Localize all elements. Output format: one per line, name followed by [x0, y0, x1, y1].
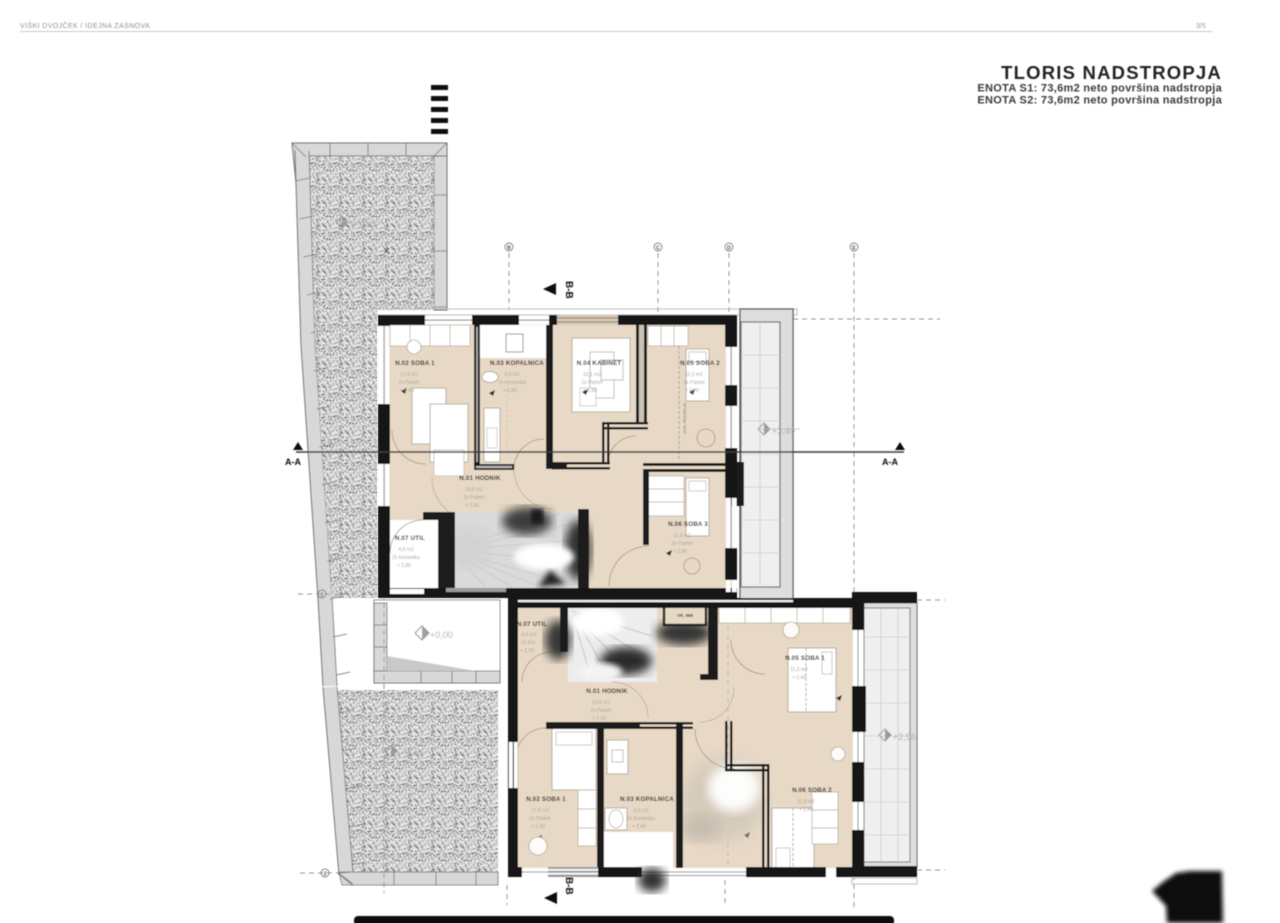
svg-text:+3,40: +3,40 — [400, 748, 423, 758]
svg-text:B: B — [507, 246, 511, 252]
svg-text:N.07 UTIL: N.07 UTIL — [395, 535, 425, 542]
svg-text:+3,40: +3,40 — [772, 426, 795, 436]
svg-text:+ 2,40: + 2,40 — [520, 648, 534, 654]
svg-text:ENOTA S2: 73,6m2 neto površin: ENOTA S2: 73,6m2 neto površina nadstropj… — [977, 95, 1222, 107]
svg-text:2x Parket: 2x Parket — [398, 380, 420, 386]
svg-text:N.05 SOBA 2: N.05 SOBA 2 — [680, 360, 720, 367]
svg-text:10,1 m2: 10,1 m2 — [583, 372, 601, 378]
svg-text:N.02 SOBA 1: N.02 SOBA 1 — [395, 360, 435, 367]
svg-text:TLORIS NADSTROPJA: TLORIS NADSTROPJA — [1001, 62, 1222, 83]
svg-text:6,0 m2: 6,0 m2 — [633, 808, 649, 814]
svg-text:6,0 m2: 6,0 m2 — [504, 372, 520, 378]
svg-text:N.03 KOPALNICA: N.03 KOPALNICA — [620, 796, 674, 803]
svg-text:2x Keramika: 2x Keramika — [498, 380, 526, 386]
svg-text:11,5 m2: 11,5 m2 — [790, 667, 808, 673]
svg-text:+ 2,40: + 2,40 — [632, 824, 646, 830]
svg-text:+ 2,80: + 2,80 — [465, 503, 479, 509]
svg-text:+ 2,80: + 2,80 — [400, 388, 414, 394]
svg-text:2x Keramika: 2x Keramika — [392, 555, 420, 561]
svg-text:B-B: B-B — [563, 877, 574, 895]
svg-text:VIŠKI DVOJČEK / IDEJNA ZASNOVA: VIŠKI DVOJČEK / IDEJNA ZASNOVA — [20, 21, 150, 30]
svg-text:E: E — [852, 246, 856, 252]
svg-text:A-A: A-A — [285, 457, 301, 467]
svg-text:+3,40: +3,40 — [352, 220, 375, 230]
svg-text:+ 2,80: + 2,80 — [685, 388, 699, 394]
svg-text:D: D — [727, 246, 731, 252]
svg-text:2x Ker.: 2x Ker. — [521, 640, 537, 646]
svg-text:2x Parket: 2x Parket — [463, 495, 485, 501]
svg-text:+ 2,80: + 2,80 — [583, 388, 597, 394]
svg-text:2: 2 — [323, 872, 326, 878]
svg-text:1: 1 — [320, 593, 323, 599]
svg-text:+ 2,80: + 2,80 — [503, 388, 517, 394]
svg-text:11,9 m2: 11,9 m2 — [673, 533, 691, 539]
svg-text:11,5 m2: 11,5 m2 — [685, 372, 703, 378]
svg-text:N.01 HODNIK: N.01 HODNIK — [459, 475, 501, 482]
svg-text:11,9 m2: 11,9 m2 — [797, 799, 815, 805]
svg-text:+ 2,40: + 2,40 — [792, 675, 806, 681]
svg-text:10,6 m2: 10,6 m2 — [465, 487, 483, 493]
svg-text:N.01 HODNIK: N.01 HODNIK — [586, 688, 628, 695]
svg-text:2x Keramika: 2x Keramika — [627, 816, 655, 822]
svg-text:VGR. POSTELJA: VGR. POSTELJA — [682, 402, 687, 434]
svg-text:C: C — [656, 246, 660, 252]
svg-text:2x Parket: 2x Parket — [529, 816, 551, 822]
svg-text:2x Parket: 2x Parket — [581, 380, 603, 386]
svg-text:3/5: 3/5 — [1196, 23, 1206, 30]
svg-text:+2,96: +2,96 — [893, 732, 916, 742]
svg-text:ENOTA S1: 73,6m2 neto površin: ENOTA S1: 73,6m2 neto površina nadstropj… — [977, 83, 1222, 95]
svg-text:VR. 666: VR. 666 — [677, 613, 694, 618]
svg-text:N.02 SOBA 1: N.02 SOBA 1 — [526, 796, 566, 803]
svg-text:N.05 SOBA 1: N.05 SOBA 1 — [785, 655, 825, 662]
svg-text:10,6 m2: 10,6 m2 — [592, 700, 610, 706]
svg-text:17,9 m2: 17,9 m2 — [400, 372, 418, 378]
svg-text:N.03 KOPALNICA: N.03 KOPALNICA — [490, 360, 544, 367]
svg-text:A-A: A-A — [882, 457, 898, 467]
svg-text:+ 2,40: + 2,40 — [531, 824, 545, 830]
svg-text:+ 2,80: + 2,80 — [673, 549, 687, 555]
svg-text:2x Parket: 2x Parket — [671, 541, 693, 547]
svg-text:B-B: B-B — [563, 281, 574, 299]
svg-text:N.04 KABINET: N.04 KABINET — [577, 360, 622, 367]
svg-text:+0,00: +0,00 — [430, 630, 453, 640]
svg-text:2x Parket: 2x Parket — [590, 708, 612, 714]
svg-text:+ 2,40: + 2,40 — [592, 716, 606, 722]
svg-text:N.06 SOBA 3: N.06 SOBA 3 — [668, 521, 708, 528]
svg-text:2x Parket: 2x Parket — [683, 380, 705, 386]
svg-text:N.07 UTIL: N.07 UTIL — [517, 621, 547, 628]
svg-text:4,6 m2: 4,6 m2 — [521, 632, 537, 638]
svg-text:N.06 SOBA 2: N.06 SOBA 2 — [792, 787, 832, 794]
svg-text:4,6 m2: 4,6 m2 — [398, 547, 414, 553]
svg-text:+ 2,40: + 2,40 — [799, 807, 813, 813]
svg-text:+ 2,80: + 2,80 — [397, 563, 411, 569]
svg-text:17,9 m2: 17,9 m2 — [531, 808, 549, 814]
